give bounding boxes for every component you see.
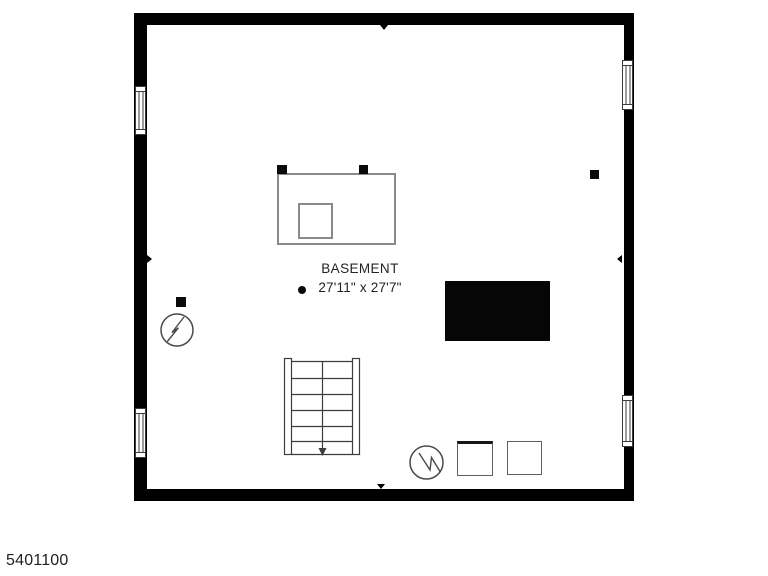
support-post (359, 165, 368, 174)
wall-marker-top (380, 25, 388, 30)
wall-marker-right (617, 255, 622, 263)
equipment-area-outline (277, 173, 396, 245)
floor-plan-canvas: BASEMENT 27'11" x 27'7" (0, 0, 768, 576)
wall-marker-bottom (377, 484, 385, 489)
window-left-top (135, 86, 146, 135)
support-post (277, 165, 287, 174)
room-dimensions-label: 27'11" x 27'7" (260, 280, 460, 295)
utility-equipment-square (457, 441, 493, 476)
equipment-inner-square (298, 203, 333, 239)
window-sash-line (136, 452, 145, 453)
support-post (176, 297, 186, 307)
circle-lightning-icon (408, 444, 445, 481)
window-sash-line (136, 129, 145, 130)
staircase-down-icon (282, 356, 362, 458)
window-sash-line (623, 441, 632, 442)
listing-id-text: 5401100 (6, 552, 69, 570)
room-name-label: BASEMENT (250, 261, 470, 276)
window-right-bottom (622, 395, 633, 447)
window-sash-line (623, 104, 632, 105)
utility-equipment-square (507, 441, 542, 475)
room-walls (134, 13, 634, 501)
window-right-top (622, 60, 633, 110)
wall-marker-left (147, 255, 152, 263)
support-post (590, 170, 599, 179)
window-pane (138, 414, 143, 452)
circle-lightning-icon (159, 312, 195, 348)
window-pane (138, 92, 143, 129)
window-pane (625, 401, 630, 441)
solid-filled-area (445, 281, 550, 341)
window-pane (625, 66, 630, 104)
window-left-bottom (135, 408, 146, 458)
